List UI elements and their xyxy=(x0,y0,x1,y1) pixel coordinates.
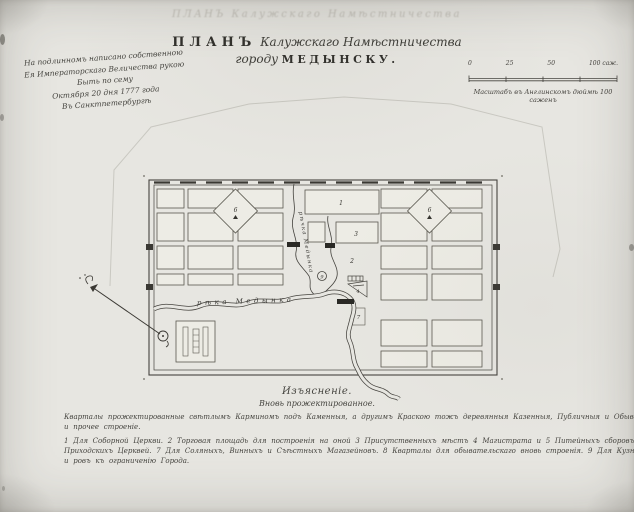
city-block xyxy=(238,274,283,285)
city-block xyxy=(188,274,233,285)
city-block xyxy=(432,320,482,346)
river-label-main: рѣка Медынка xyxy=(197,296,295,307)
city-blocks-center xyxy=(305,190,379,243)
plot-number: 3 xyxy=(354,231,358,238)
city-block xyxy=(381,246,427,269)
city-block xyxy=(157,213,184,241)
plot-number: 4 xyxy=(355,289,359,295)
city-blocks-west xyxy=(157,189,283,285)
city-block xyxy=(381,351,427,367)
mill-site: 9 xyxy=(318,272,327,281)
plot-number: 6 xyxy=(428,207,432,214)
city-block xyxy=(157,246,184,269)
city-block xyxy=(381,274,427,300)
plot-number: 1 xyxy=(339,200,343,207)
city-block xyxy=(157,189,184,208)
city-block xyxy=(157,274,184,285)
paper-blemish xyxy=(2,486,5,491)
plot-number: 7 xyxy=(357,315,361,321)
city-block xyxy=(432,351,482,367)
map-sheet: { "colors": { "ink": "#3b3a36", "paper":… xyxy=(0,0,634,512)
paper-blemish xyxy=(0,34,5,45)
city-block xyxy=(188,246,233,269)
city-block xyxy=(381,320,427,346)
map-table xyxy=(176,321,215,362)
plot-number: 2 xyxy=(349,258,354,265)
plot-number: 6 xyxy=(234,207,238,214)
paper-blemish xyxy=(629,244,634,251)
city-block xyxy=(238,246,283,269)
paper-blemish xyxy=(0,114,4,121)
town-plan: 6 6 1 3 2 9 4 7 xyxy=(0,0,634,512)
city-block xyxy=(432,246,482,269)
city-block xyxy=(308,222,325,242)
plot-number: 9 xyxy=(320,275,324,281)
city-block xyxy=(432,274,482,300)
